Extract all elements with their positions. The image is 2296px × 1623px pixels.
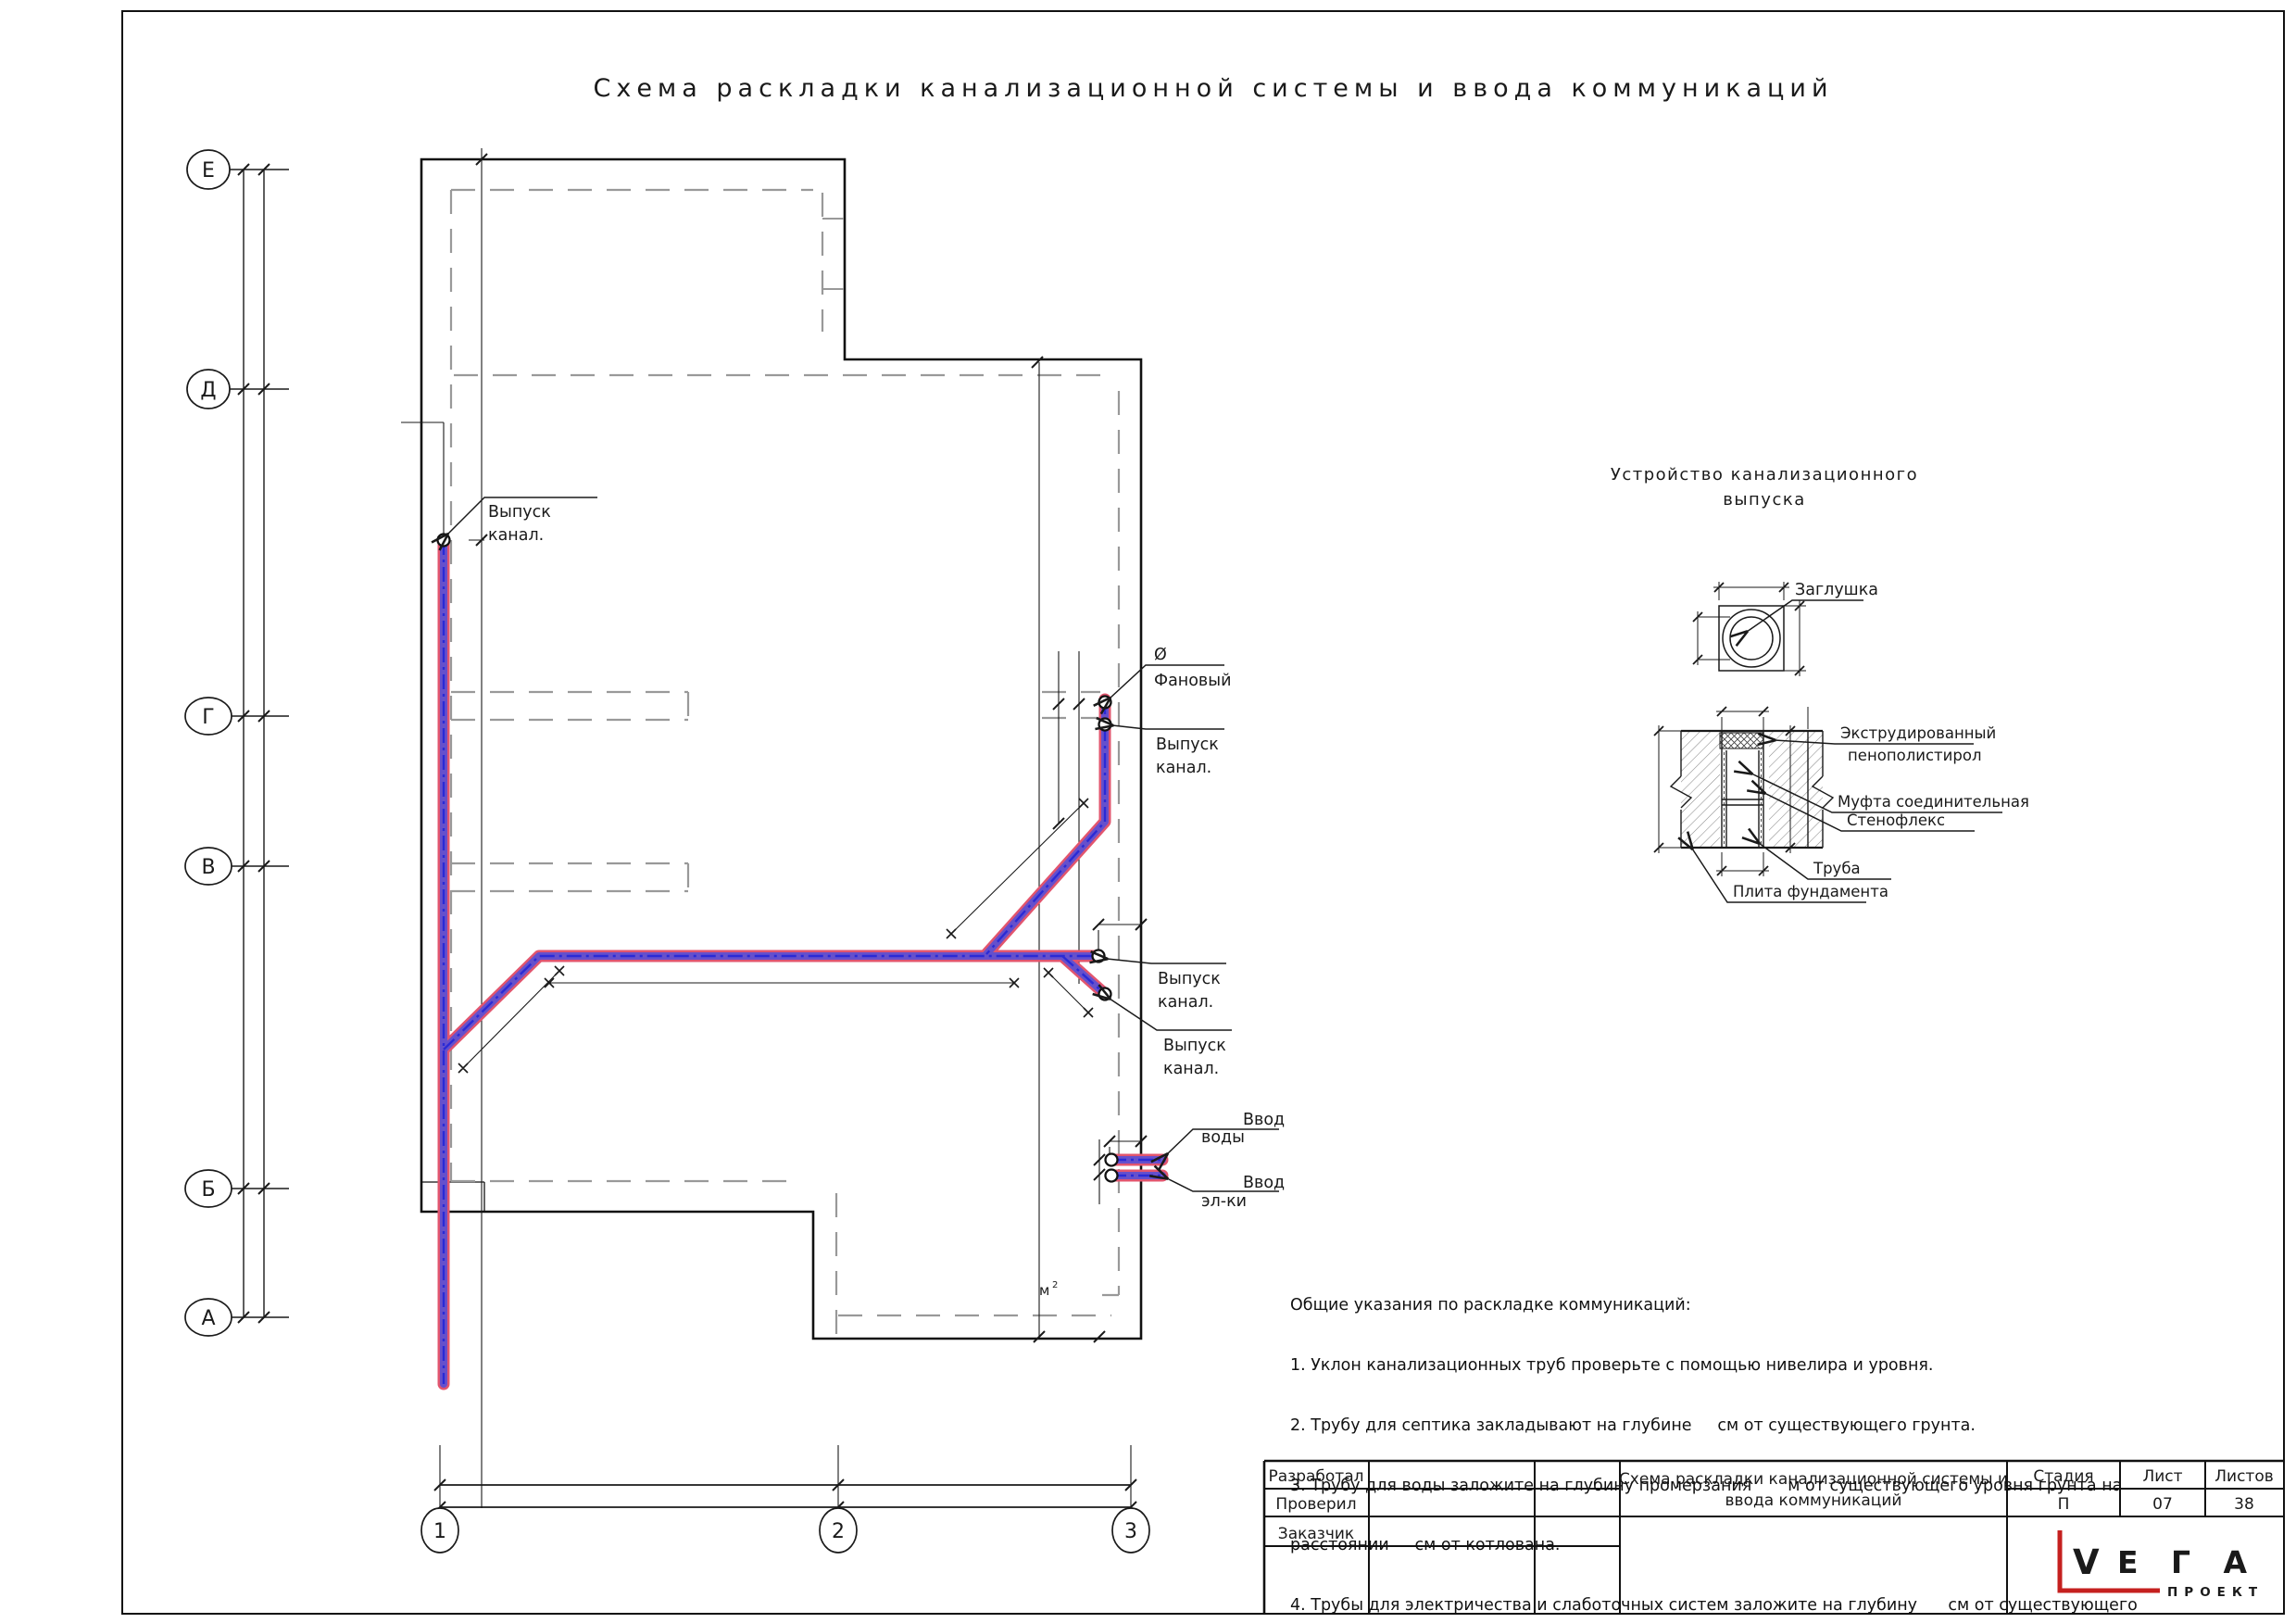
label-plug: Заглушка	[1795, 581, 1878, 599]
label-outlet-2-line1: Выпуск	[1156, 736, 1219, 754]
page-title: Схема раскладки канализационной системы …	[593, 74, 1833, 103]
label-coupling: Муфта соединительная	[1838, 793, 2029, 811]
axis-row-e: Е	[202, 159, 215, 182]
notes-line: 2. Трубу для септика закладывают на глуб…	[1290, 1416, 2272, 1437]
axis-row-g: Г	[202, 706, 214, 729]
notes-line: 1. Уклон канализационных труб проверьте …	[1290, 1356, 2272, 1377]
detail-title-line1: Устройство канализационного	[1611, 465, 1918, 484]
label-vent: Фановый	[1154, 672, 1231, 690]
label-outlet-4-line1: Выпуск	[1163, 1037, 1226, 1055]
label-electric-inlet-line2: эл-ки	[1201, 1192, 1247, 1211]
label-xps-line1: Экструдированный	[1840, 724, 1996, 742]
axis-row-v: В	[201, 856, 215, 879]
label-pipe: Труба	[1813, 860, 1861, 877]
label-outlet-1-line1: Выпуск	[488, 503, 551, 522]
label-electric-inlet-line1: Ввод	[1243, 1174, 1285, 1192]
notes-heading: Общие указания по раскладке коммуникаций…	[1290, 1296, 2272, 1316]
detail-title-line2: выпуска	[1723, 490, 1806, 510]
label-xps-line2: пенополистирол	[1848, 747, 1982, 764]
label-water-inlet-line1: Ввод	[1243, 1111, 1285, 1129]
axis-col-1: 1	[433, 1520, 446, 1543]
general-notes: Общие указания по раскладке коммуникаций…	[1290, 1256, 2272, 1623]
label-outlet-2-line2: канал.	[1156, 759, 1211, 777]
label-stenoflex: Стенофлекс	[1847, 811, 1945, 829]
label-outlet-4-line2: канал.	[1163, 1060, 1219, 1078]
label-area-unit: м	[1039, 1282, 1049, 1299]
drawing-sheet: Схема раскладки канализационной системы …	[0, 0, 2296, 1623]
label-outlet-3-line1: Выпуск	[1158, 970, 1221, 988]
notes-line: 4. Трубы для электричества и слаботочных…	[1290, 1596, 2272, 1617]
axis-row-d: Д	[200, 379, 216, 402]
label-slab: Плита фундамента	[1733, 883, 1888, 900]
label-water-inlet-line2: воды	[1201, 1128, 1245, 1147]
label-vent-diameter: Ø	[1154, 646, 1167, 664]
label-outlet-3-line2: канал.	[1158, 993, 1213, 1012]
notes-line: расстоянии см от котлована.	[1290, 1536, 2272, 1556]
axis-col-2: 2	[832, 1520, 845, 1543]
notes-line: 3. Трубу для воды заложите на глубину пр…	[1290, 1477, 2272, 1497]
axis-row-a: А	[201, 1307, 215, 1330]
axis-row-b: Б	[201, 1178, 215, 1202]
label-area-sup: 2	[1052, 1280, 1058, 1290]
axis-col-3: 3	[1124, 1520, 1137, 1543]
label-outlet-1-line2: канал.	[488, 526, 544, 545]
